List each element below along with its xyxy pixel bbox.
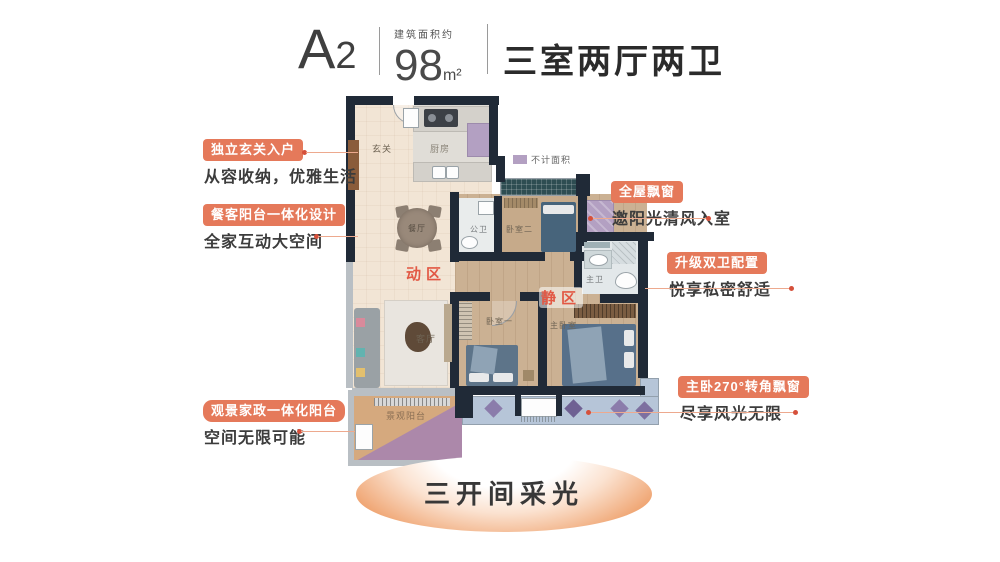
kitchen-sink <box>432 166 446 179</box>
wall-ac-post-left <box>515 388 521 416</box>
legend-not-counted-label: 不计面积 <box>531 153 571 166</box>
wall-balcony-left <box>348 390 354 466</box>
fridge <box>403 108 419 128</box>
wall-bottom-strip <box>455 386 645 395</box>
label-public-bath: 公卫 <box>470 224 488 235</box>
callout-balcony-leader <box>301 431 355 432</box>
wall-bottom-left-post <box>455 386 473 418</box>
wall-living-balcony <box>352 388 455 396</box>
callout-baywindow-dot-a <box>588 216 593 221</box>
callout-baywindow-title: 全屋飘窗 <box>611 181 683 203</box>
wall-bay2-post <box>576 174 590 196</box>
public-bath-toilet <box>461 236 478 249</box>
stove <box>424 109 458 127</box>
entry-door-gap <box>393 96 414 105</box>
callout-baywindow-leader <box>592 218 708 219</box>
wall-kitchen-right <box>489 96 498 162</box>
sofa <box>354 308 380 388</box>
legend-not-counted-swatch <box>513 155 527 164</box>
callout-entry-desc: 从容收纳，优雅生活 <box>204 163 357 187</box>
label-master-bedroom: 主卧室 <box>550 320 577 331</box>
label-view-balcony: 景观阳台 <box>386 409 426 422</box>
callout-bath-title: 升级双卫配置 <box>667 252 767 274</box>
callout-baywindow-dot-b <box>706 216 711 221</box>
label-zone-quiet: 静区 <box>539 287 583 308</box>
public-bath-sink <box>478 201 494 215</box>
banner-text: 三开间采光 <box>356 474 652 511</box>
master-bed <box>562 324 636 386</box>
header-divider-2 <box>487 24 488 74</box>
callout-masterbay-dot-b <box>793 410 798 415</box>
bedroom1-nightstand <box>523 370 534 381</box>
balcony-bench <box>374 398 450 406</box>
bedroom2-bed <box>541 202 576 252</box>
callout-entry-leader <box>306 152 358 153</box>
header-divider-1 <box>379 27 380 75</box>
label-dining: 餐厅 <box>408 223 426 234</box>
master-bath-counter <box>584 250 612 269</box>
label-zone-active: 动区 <box>404 263 448 284</box>
unit-name: A2 <box>298 16 357 81</box>
callout-balcony-title: 观景家政一体化阳台 <box>203 400 345 422</box>
label-bedroom1: 卧室一 <box>486 316 513 327</box>
callout-masterbay-title: 主卧270°转角飘窗 <box>678 376 809 398</box>
area-label: 建筑面积约 <box>394 26 462 41</box>
master-bath-mirror <box>584 242 610 248</box>
callout-entry-title: 独立玄关入户 <box>203 139 303 161</box>
callout-balcony-desc: 空间无限可能 <box>204 424 306 448</box>
area-value: 98 <box>394 41 443 90</box>
bedroom2-desk <box>504 198 538 208</box>
label-kitchen: 厨房 <box>430 142 450 155</box>
wall-right <box>638 232 648 378</box>
callout-masterbay-leader <box>590 412 795 413</box>
wall-ac-post-right <box>556 388 562 416</box>
master-wardrobe <box>574 304 636 318</box>
bedroom1-wardrobe <box>459 302 472 340</box>
page-title: 三室两厅两卫 <box>503 34 725 83</box>
callout-masterbay-dot-a <box>586 410 591 415</box>
unit-number: 2 <box>335 35 356 77</box>
wall-bedroom1-top-a <box>450 292 490 301</box>
washing-machine <box>355 424 373 450</box>
callout-dining-desc: 全家互动大空间 <box>204 228 323 252</box>
bedroom1-bed <box>466 345 518 386</box>
ac-unit-box <box>521 398 557 417</box>
bedroom2-bay-window <box>500 178 580 196</box>
label-bedroom2: 卧室二 <box>506 224 533 235</box>
unit-letter: A <box>298 17 335 80</box>
window-left-lower <box>346 262 353 388</box>
ac-unit-vent <box>521 416 556 422</box>
master-bath-shower <box>612 242 636 264</box>
area-block: 建筑面积约 98m² <box>394 26 462 91</box>
callout-bath-leader <box>645 288 791 289</box>
floorplan-page: A2 建筑面积约 98m² 三室两厅两卫 不计面积 <box>0 0 1000 562</box>
tv-console <box>444 304 452 362</box>
wall-bedroom2-left <box>494 196 502 260</box>
label-entry: 玄关 <box>372 142 392 155</box>
callout-dining-title: 餐客阳台一体化设计 <box>203 204 345 226</box>
wall-step-v <box>496 156 505 182</box>
callout-dining-leader <box>318 236 358 237</box>
callout-baywindow-desc: 邀阳光清风入室 <box>612 205 731 229</box>
master-bath-toilet <box>615 272 637 289</box>
wall-top <box>348 96 499 105</box>
label-master-bath: 主卫 <box>586 274 604 285</box>
callout-bath-dot <box>789 286 794 291</box>
area-unit: m² <box>443 67 462 84</box>
wall-publicbath-bottom <box>450 252 496 261</box>
wall-bedroom2-bottom-a <box>494 252 545 261</box>
label-living: 客厅 <box>416 332 436 345</box>
kitchen-sink-2 <box>446 166 459 179</box>
wall-masterbath-bottom <box>600 294 648 303</box>
